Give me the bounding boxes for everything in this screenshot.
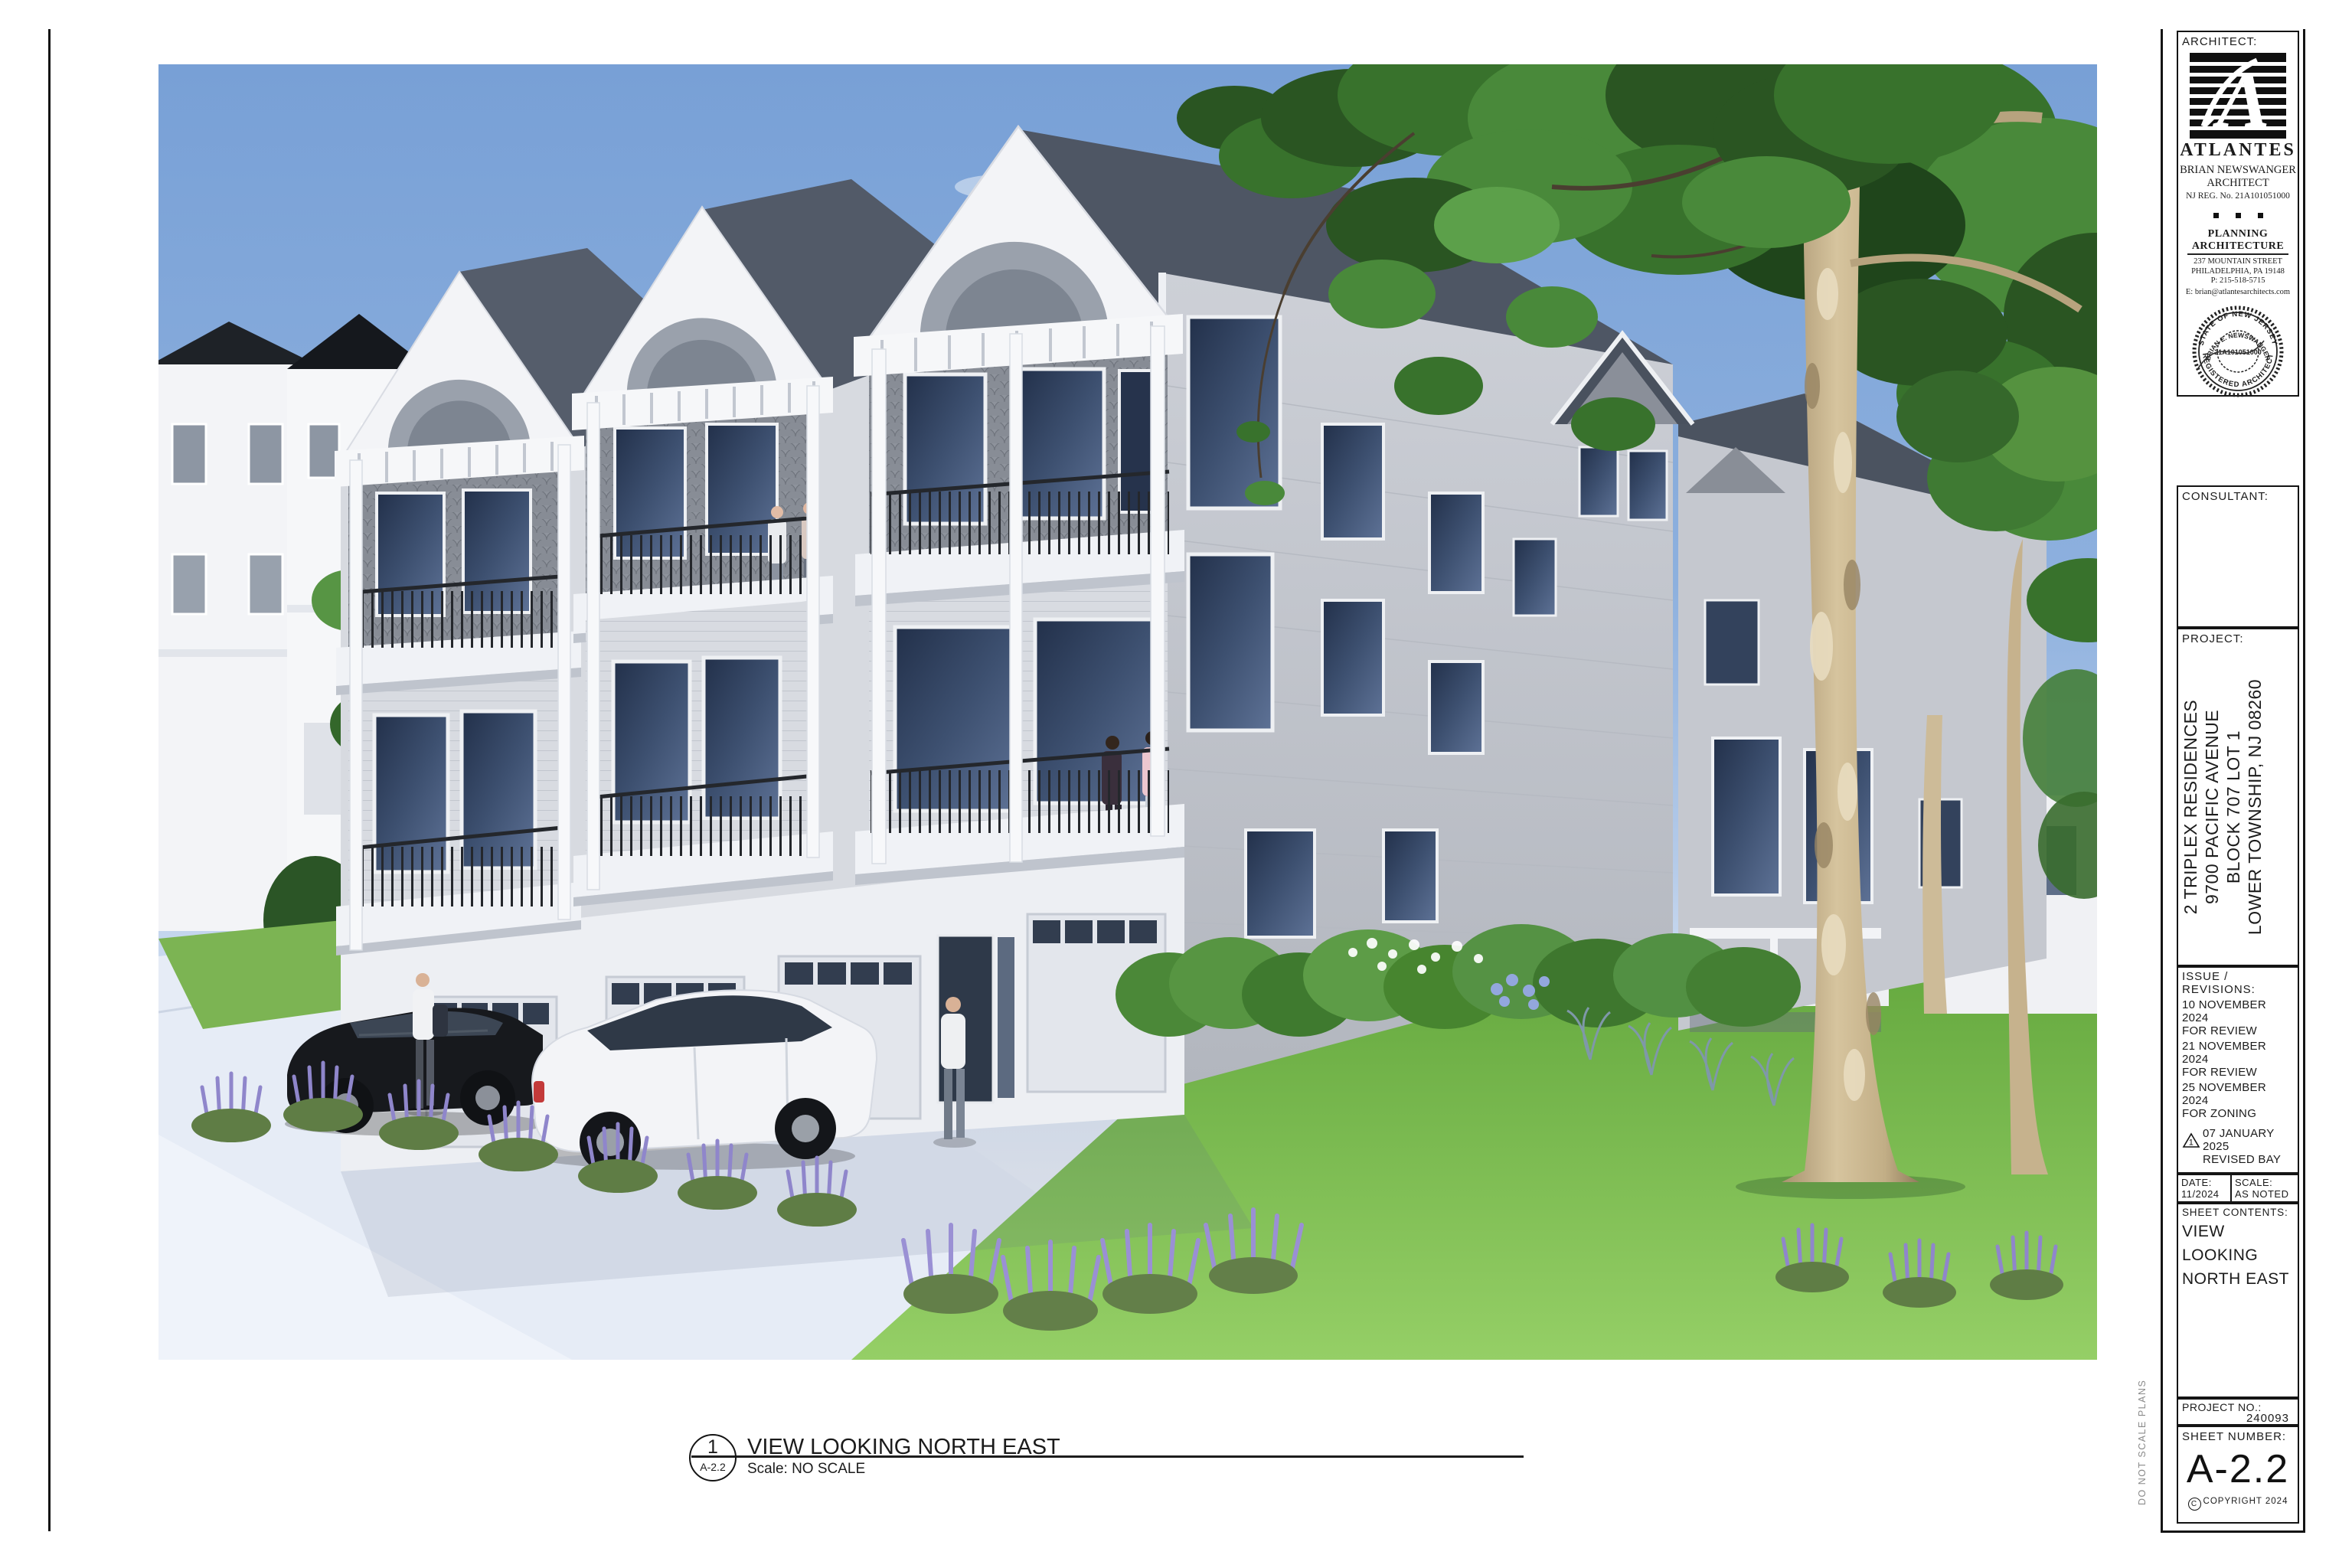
revisions-box: ISSUE / REVISIONS: 10 NOVEMBER 2024 FOR … (2177, 966, 2299, 1174)
firm-name: ATLANTES (2178, 140, 2298, 161)
practice-line1: PLANNING (2178, 228, 2298, 240)
architect-title: ARCHITECT (2178, 177, 2298, 190)
project-number-box: PROJECT NO.: 240093 (2177, 1398, 2299, 1426)
date-value: 11/2024 (2181, 1188, 2227, 1200)
divider-squares-icon (2178, 208, 2298, 222)
architect-name: BRIAN NEWSWANGER (2178, 164, 2298, 177)
revision-note: FOR REVIEW (2182, 1066, 2294, 1079)
consultant-box: CONSULTANT: (2177, 485, 2299, 628)
revisions-label: ISSUE / REVISIONS: (2182, 970, 2294, 996)
revision-row: 10 NOVEMBER 2024 FOR REVIEW (2182, 998, 2294, 1037)
architect-seal: STATE OF NEW JERSEY REGISTERED ARCHITECT… (2190, 303, 2286, 400)
project-line4: LOWER TOWNSHIP, NJ 08260 (2244, 652, 2265, 962)
project-number-value: 240093 (2182, 1412, 2294, 1425)
revision-date: 10 NOVEMBER 2024 (2182, 998, 2294, 1024)
consultant-label: CONSULTANT: (2178, 487, 2298, 503)
date-scale-box: DATE: 11/2024 SCALE: AS NOTED (2177, 1174, 2299, 1203)
copyright-icon: C (2188, 1498, 2201, 1511)
registration-number: NJ REG. No. 21A101051000 (2178, 191, 2298, 201)
sheet-contents-line1: VIEW (2182, 1222, 2294, 1242)
project-title-rotated: 2 TRIPLEX RESIDENCES 9700 PACIFIC AVENUE… (2180, 652, 2296, 963)
sheet-number-value: A-2.2 (2178, 1446, 2298, 1492)
detail-reference-bubble: 1 A-2.2 (689, 1434, 737, 1481)
revision-date: 21 NOVEMBER 2024 (2182, 1040, 2294, 1066)
scale-label: SCALE: (2235, 1177, 2295, 1188)
scale-value: AS NOTED (2235, 1188, 2295, 1200)
view-scale-note: Scale: NO SCALE (747, 1461, 865, 1478)
architect-label: ARCHITECT: (2178, 32, 2298, 48)
detail-number: 1 (691, 1436, 735, 1458)
revision-delta-icon: 1 (2182, 1132, 2200, 1148)
date-label: DATE: (2181, 1177, 2227, 1188)
revision-row: 1 07 JANUARY 2025 (2182, 1127, 2294, 1153)
sheet-contents-line3: NORTH EAST (2182, 1269, 2294, 1289)
sheet-number-label: SHEET NUMBER: (2178, 1427, 2298, 1443)
sheet-left-border (48, 29, 51, 1531)
sheet-number-box: SHEET NUMBER: A-2.2 CCOPYRIGHT 2024 (2177, 1426, 2299, 1524)
phone: P: 215-518-5715 (2178, 276, 2298, 286)
svg-text:BRIAN E. NEWSWANGER: BRIAN E. NEWSWANGER (2204, 331, 2272, 361)
practice-line2: ARCHITECTURE (2187, 240, 2288, 255)
address-line1: 237 MOUNTAIN STREET (2178, 257, 2298, 267)
detail-sheet-ref: A-2.2 (691, 1461, 735, 1473)
project-line2: 9700 PACIFIC AVENUE (2201, 652, 2223, 962)
revision-row: 25 NOVEMBER 2024 FOR ZONING (2182, 1081, 2294, 1120)
svg-text:1: 1 (2189, 1138, 2194, 1147)
do-not-scale-note: DO NOT SCALE PLANS (2137, 1355, 2152, 1505)
svg-text:STATE OF NEW JERSEY: STATE OF NEW JERSEY (2197, 310, 2279, 347)
revision-date: 07 JANUARY 2025 (2203, 1127, 2294, 1153)
rendering-view-looking-north-east (158, 64, 2097, 1360)
architect-box: ARCHITECT: A ATLANTES BRIAN NEWSWANGER A… (2177, 31, 2299, 397)
email: E: brian@atlantesarchitects.com (2178, 288, 2298, 298)
copyright-note: CCOPYRIGHT 2024 (2178, 1497, 2298, 1511)
sheet-contents-label: SHEET CONTENTS: (2182, 1207, 2294, 1218)
project-line3: BLOCK 707 LOT 1 (2223, 652, 2244, 962)
project-box: PROJECT: 2 TRIPLEX RESIDENCES 9700 PACIF… (2177, 628, 2299, 966)
sheet-contents-box: SHEET CONTENTS: VIEW LOOKING NORTH EAST (2177, 1203, 2299, 1398)
view-title: VIEW LOOKING NORTH EAST (747, 1435, 1060, 1460)
address-line2: PHILADELPHIA, PA 19148 (2178, 267, 2298, 277)
project-label: PROJECT: (2178, 629, 2298, 645)
titleblock: ARCHITECT: A ATLANTES BRIAN NEWSWANGER A… (2161, 29, 2305, 1533)
sheet-contents-line2: LOOKING (2182, 1246, 2294, 1266)
revision-date: 25 NOVEMBER 2024 (2182, 1081, 2294, 1107)
revision-note: FOR REVIEW (2182, 1024, 2294, 1037)
revision-note: FOR ZONING (2182, 1107, 2294, 1120)
project-line1: 2 TRIPLEX RESIDENCES (2180, 652, 2201, 962)
atlantes-logo-icon: A (2190, 53, 2286, 139)
revision-note: REVISED BAY (2182, 1153, 2294, 1166)
revision-row: 21 NOVEMBER 2024 FOR REVIEW (2182, 1040, 2294, 1079)
